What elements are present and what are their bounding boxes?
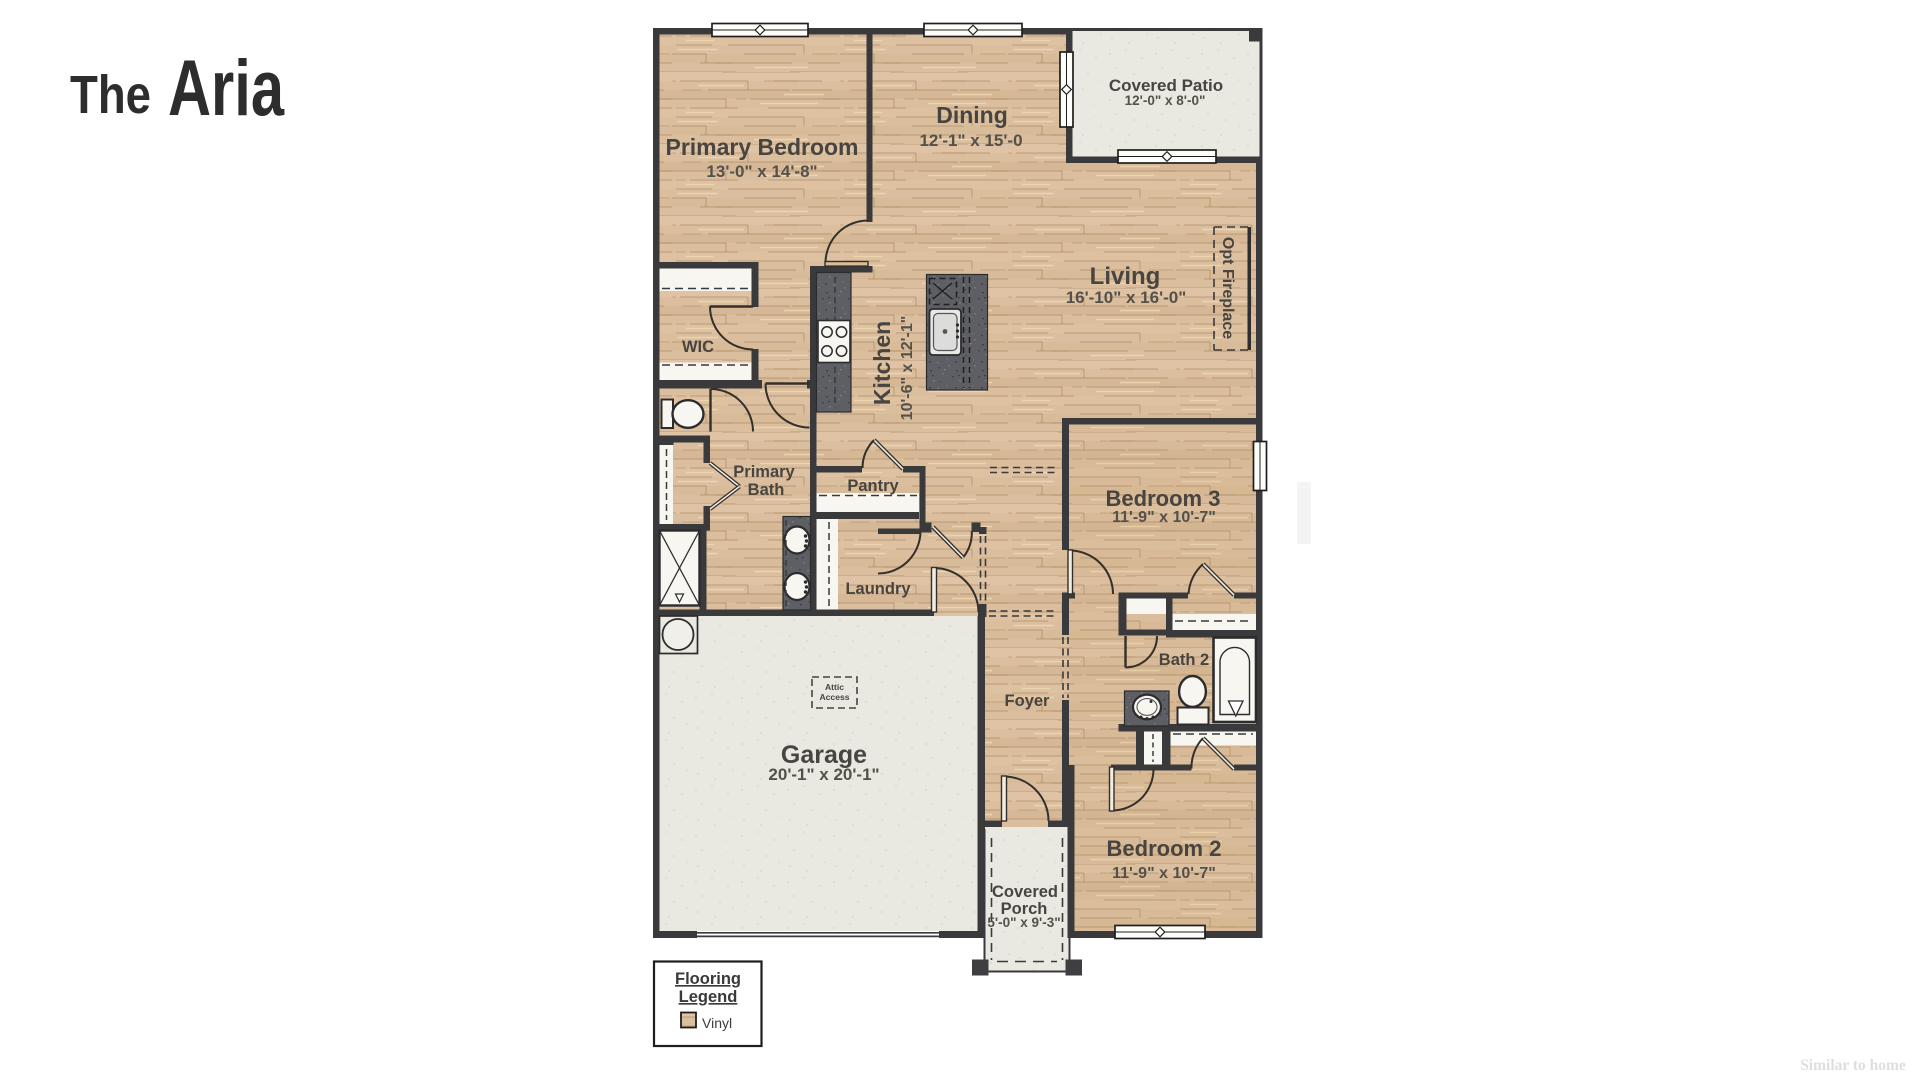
svg-text:Aria: Aria [168, 43, 285, 132]
svg-text:WIC: WIC [682, 338, 714, 356]
svg-text:11'-9" x 10'-7": 11'-9" x 10'-7" [1112, 865, 1216, 882]
svg-text:16'-10" x 16'-0": 16'-10" x 16'-0" [1066, 288, 1187, 307]
svg-text:Foyer: Foyer [1005, 692, 1051, 710]
svg-text:Bath: Bath [748, 481, 785, 499]
svg-text:Opt Fireplace: Opt Fireplace [1219, 237, 1236, 339]
svg-text:Kitchen: Kitchen [869, 321, 895, 405]
svg-text:5'-0" x 9'-3": 5'-0" x 9'-3" [987, 915, 1060, 930]
svg-text:11'-9" x 10'-7": 11'-9" x 10'-7" [1112, 509, 1216, 526]
svg-text:20'-1" x 20'-1": 20'-1" x 20'-1" [768, 765, 879, 784]
svg-text:Flooring: Flooring [675, 970, 741, 988]
svg-text:Laundry: Laundry [845, 580, 911, 598]
svg-text:13'-0" x 14'-8": 13'-0" x 14'-8" [706, 162, 817, 181]
svg-text:12'-1" x 15'-0: 12'-1" x 15'-0 [919, 131, 1022, 150]
svg-text:Legend: Legend [679, 988, 738, 1006]
svg-text:10'-6" x 12'-1": 10'-6" x 12'-1" [899, 316, 916, 421]
svg-text:Bedroom 2: Bedroom 2 [1107, 836, 1222, 861]
svg-text:Pantry: Pantry [847, 477, 899, 495]
svg-text:Dining: Dining [936, 102, 1008, 128]
svg-text:Primary Bedroom: Primary Bedroom [665, 134, 858, 160]
svg-text:Bedroom 3: Bedroom 3 [1106, 486, 1221, 511]
svg-text:Covered: Covered [992, 883, 1058, 901]
svg-text:Vinyl: Vinyl [702, 1015, 732, 1031]
svg-text:12'-0" x 8'-0": 12'-0" x 8'-0" [1125, 93, 1206, 108]
svg-text:Attic: Attic [825, 682, 844, 692]
svg-text:Bath 2: Bath 2 [1159, 651, 1209, 669]
svg-text:The: The [70, 65, 151, 125]
svg-text:Primary: Primary [733, 463, 795, 481]
svg-text:Access: Access [819, 692, 849, 702]
svg-text:Living: Living [1090, 263, 1161, 290]
svg-text:Similar to home: Similar to home [1800, 1057, 1906, 1074]
